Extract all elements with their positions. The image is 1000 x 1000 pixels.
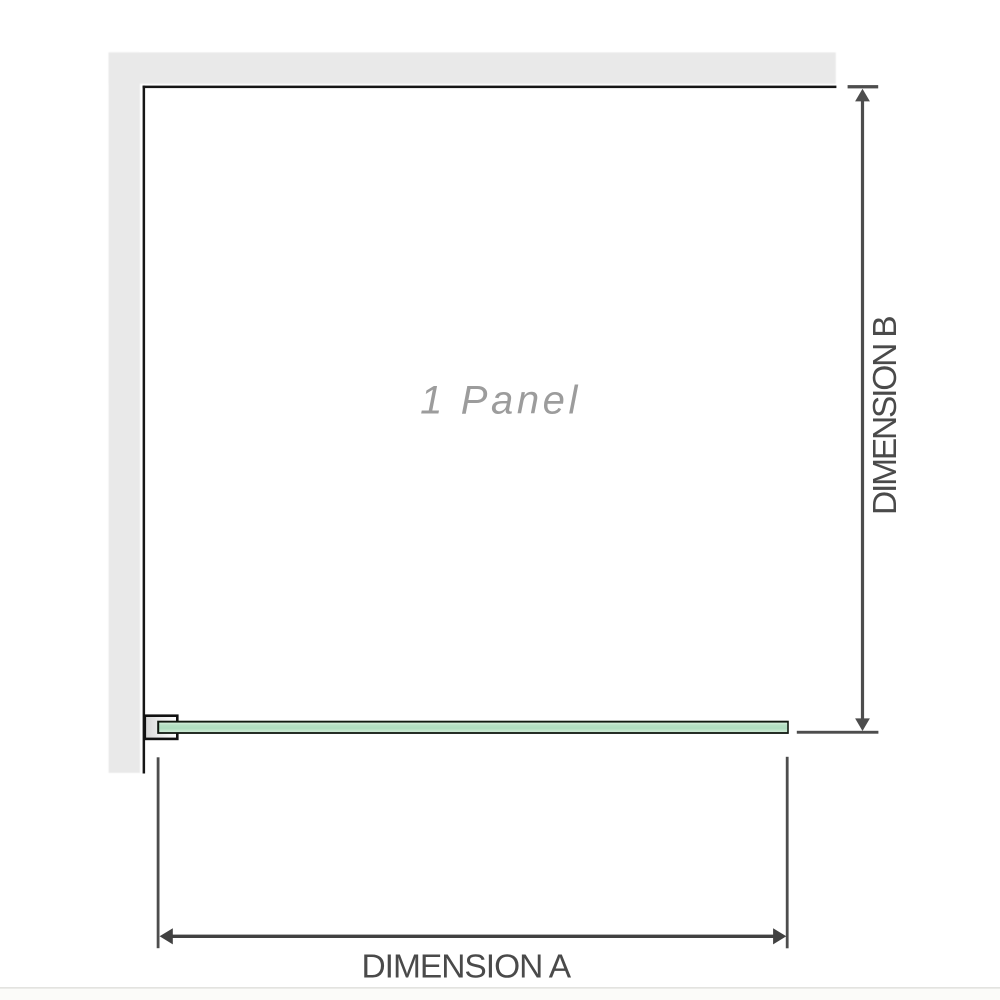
svg-text:DIMENSION B: DIMENSION B [867, 317, 904, 515]
svg-text:DIMENSION A: DIMENSION A [361, 949, 571, 986]
svg-text:1 Panel: 1 Panel [420, 378, 581, 422]
